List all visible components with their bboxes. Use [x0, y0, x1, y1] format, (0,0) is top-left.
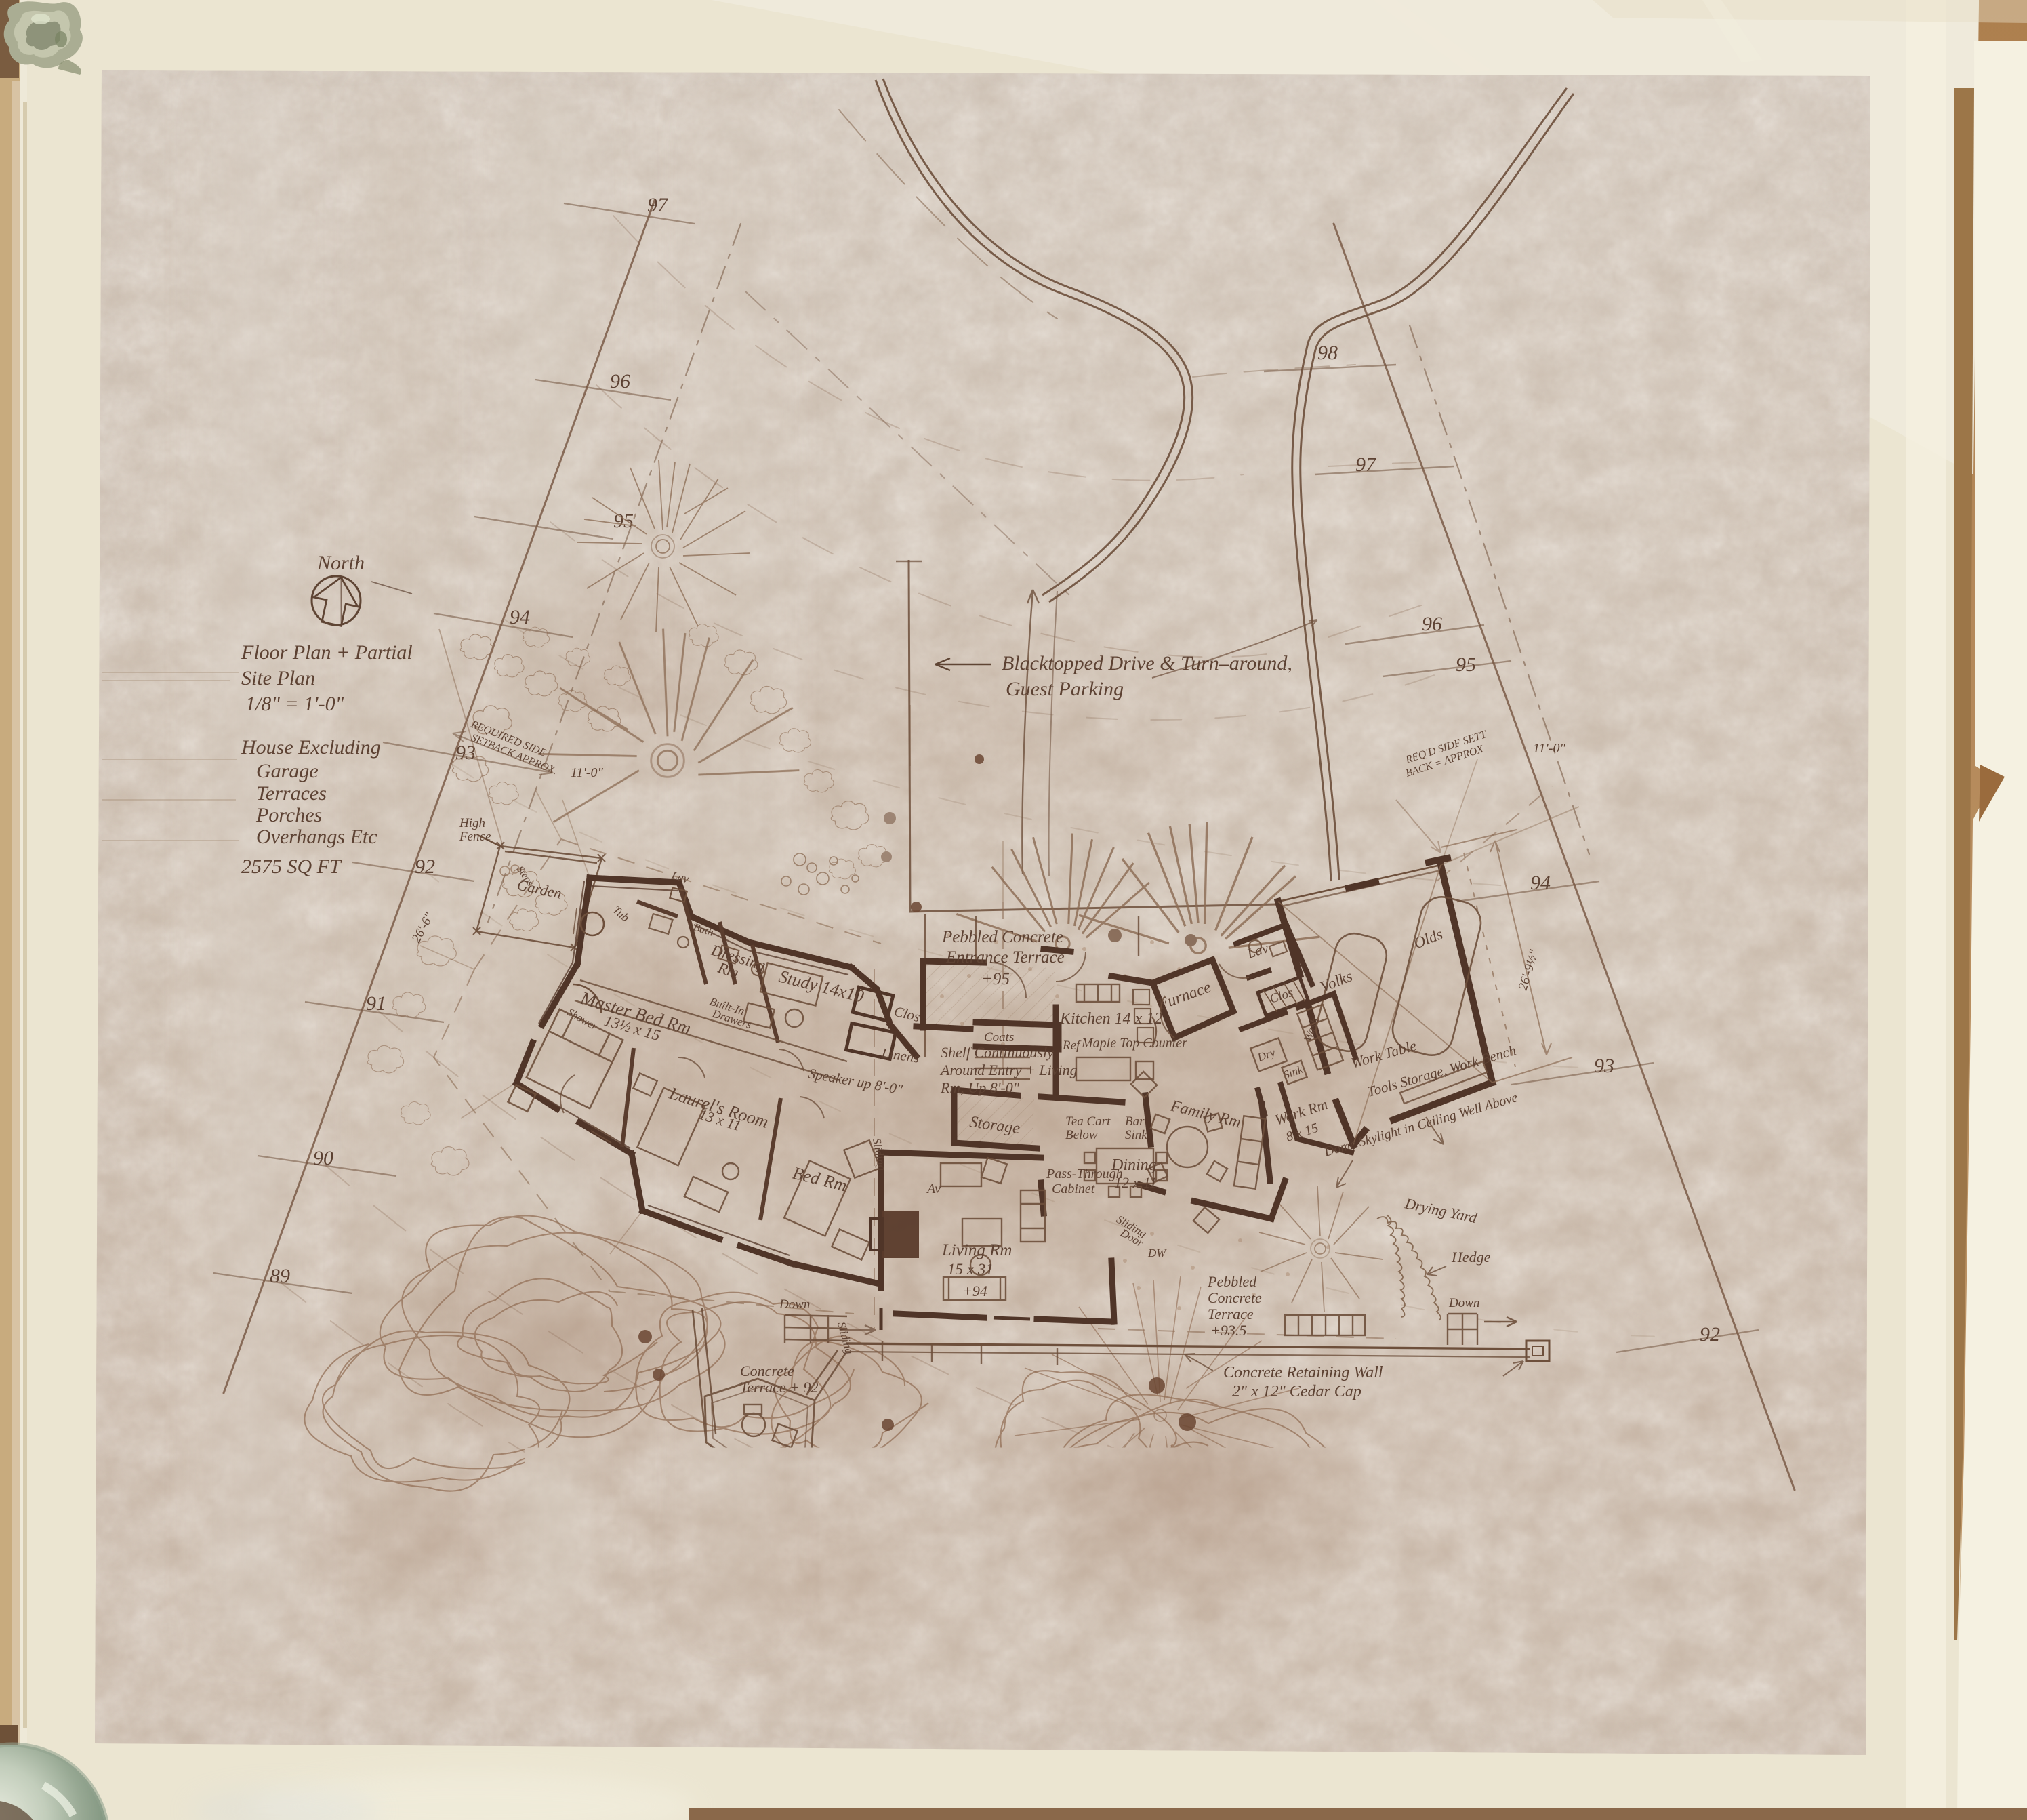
svg-text:Garage: Garage — [256, 760, 319, 782]
svg-text:Porches: Porches — [255, 804, 322, 826]
svg-text:Below: Below — [1065, 1128, 1098, 1142]
svg-text:Concrete: Concrete — [740, 1362, 794, 1379]
svg-text:+93.5: +93.5 — [1210, 1322, 1246, 1339]
svg-text:Pebbled Concrete: Pebbled Concrete — [941, 928, 1063, 946]
svg-text:Terraces: Terraces — [256, 782, 327, 805]
svg-text:+95: +95 — [981, 970, 1010, 988]
svg-text:Terrace + 92: Terrace + 92 — [740, 1379, 818, 1396]
svg-text:Site Plan: Site Plan — [241, 667, 315, 689]
svg-text:Tea Cart: Tea Cart — [1065, 1114, 1111, 1129]
svg-text:Napa California: Napa California — [1410, 1604, 1589, 1634]
svg-text:DW: DW — [1147, 1247, 1167, 1259]
svg-text:Sink: Sink — [1125, 1128, 1147, 1142]
svg-text:Fourth Preliminary Drawing: Fourth Preliminary Drawing — [190, 1597, 506, 1627]
svg-text:Cabinet: Cabinet — [1052, 1181, 1095, 1196]
svg-text:Proposed House for Capt + M: Proposed House for Capt + Mrs Ivan Hartz… — [601, 1600, 1216, 1630]
svg-text:97: 97 — [1355, 453, 1377, 476]
svg-text:2575 SQ FT: 2575 SQ FT — [241, 855, 342, 878]
svg-text:Architect: Architect — [602, 1636, 699, 1664]
svg-text:+94: +94 — [962, 1282, 987, 1299]
svg-text:North: North — [316, 552, 365, 574]
svg-text:Dining: Dining — [1111, 1156, 1157, 1174]
svg-text:1/8" = 1'-0": 1/8" = 1'-0" — [245, 693, 344, 715]
svg-text:High: High — [459, 816, 485, 830]
svg-text:Blacktopped Drive & Turn–aroun: Blacktopped Drive & Turn–around, — [1002, 652, 1292, 674]
svg-text:Fence: Fence — [459, 830, 491, 844]
svg-text:12 x 11: 12 x 11 — [1114, 1174, 1157, 1191]
svg-text:Coats: Coats — [984, 1030, 1014, 1045]
svg-text:Floor Plan + Partial: Floor Plan + Partial — [241, 641, 413, 664]
svg-text:89: 89 — [270, 1265, 290, 1287]
svg-text:Maple Top Counter: Maple Top Counter — [1081, 1036, 1187, 1051]
svg-text:Guest Parking: Guest Parking — [1006, 678, 1124, 700]
svg-text:Down: Down — [1448, 1296, 1479, 1310]
svg-text:Av: Av — [926, 1181, 941, 1196]
svg-text:97: 97 — [647, 194, 669, 216]
svg-text:93: 93 — [1594, 1055, 1614, 1077]
svg-text:Ref: Ref — [1062, 1038, 1082, 1053]
svg-text:11'-0": 11'-0" — [571, 765, 603, 780]
svg-text:Hedge: Hedge — [1451, 1249, 1491, 1266]
svg-text:Terrace: Terrace — [1208, 1306, 1254, 1322]
svg-text:Around Entry + Living: Around Entry + Living — [939, 1061, 1078, 1078]
svg-text:Concrete: Concrete — [1208, 1289, 1262, 1306]
svg-text:2" x 12" Cedar Cap: 2" x 12" Cedar Cap — [1232, 1383, 1361, 1400]
svg-text:98: 98 — [1317, 342, 1338, 364]
svg-text:15 x 31: 15 x 31 — [947, 1261, 994, 1278]
svg-text:96: 96 — [610, 370, 630, 392]
svg-text:92: 92 — [1700, 1323, 1720, 1346]
svg-text:Shelf Continuously: Shelf Continuously — [941, 1044, 1054, 1061]
svg-text:Bar: Bar — [1125, 1114, 1145, 1129]
svg-text:Entrance Terrace: Entrance Terrace — [945, 948, 1065, 967]
svg-text:Pebbled: Pebbled — [1207, 1273, 1257, 1290]
svg-text:Daniel M Streissguth: Daniel M Streissguth — [303, 1633, 522, 1661]
svg-text:96: 96 — [1422, 613, 1442, 635]
svg-text:House Excluding: House Excluding — [241, 736, 381, 759]
svg-text:92: 92 — [415, 855, 435, 878]
svg-text:Living Rm: Living Rm — [941, 1241, 1012, 1259]
svg-text:11'-0": 11'-0" — [1533, 741, 1565, 756]
svg-text:Revised 24 July 1964: Revised 24 July 1964 — [1482, 1684, 1650, 1706]
svg-text:Overhangs Etc: Overhangs Etc — [256, 826, 377, 848]
svg-text:Seattle 2: Seattle 2 — [1117, 1638, 1206, 1667]
svg-text:Rm, Up 8'-0": Rm, Up 8'-0" — [940, 1079, 1020, 1096]
svg-text:Kitchen 14 x 12: Kitchen 14 x 12 — [1059, 1010, 1162, 1028]
svg-text:900 East Blaine Street: 900 East Blaine Street — [787, 1637, 1019, 1665]
svg-text:Concrete Retaining Wall: Concrete Retaining Wall — [1223, 1364, 1383, 1381]
svg-text:91: 91 — [366, 992, 386, 1015]
svg-text:Revised 11 Aug 1964: Revised 11 Aug 1964 — [1482, 1709, 1647, 1731]
svg-text:90: 90 — [313, 1147, 333, 1169]
svg-text:91: 91 — [1761, 1594, 1781, 1617]
svg-text:94: 94 — [1530, 872, 1551, 894]
svg-text:95: 95 — [1456, 653, 1476, 676]
svg-text:Down: Down — [779, 1297, 810, 1312]
svg-text:94: 94 — [510, 606, 530, 628]
svg-text:15 July 1964: 15 July 1964 — [1496, 1656, 1616, 1681]
